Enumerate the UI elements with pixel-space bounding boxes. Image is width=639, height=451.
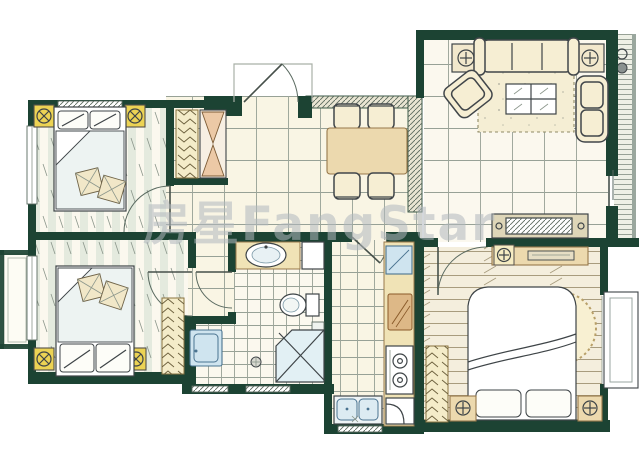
bed-1 (54, 107, 126, 211)
bay-window (602, 292, 638, 388)
bedroom-1-window (27, 126, 37, 204)
tv-cabinet (492, 214, 588, 238)
balcony-left (0, 250, 30, 349)
dining-chair (334, 173, 360, 199)
armchair-right (576, 76, 608, 142)
corner-cabinet (386, 398, 414, 424)
exterior-area (0, 384, 186, 451)
floor-drain (251, 357, 261, 367)
watermark: 房星FangStar (143, 197, 496, 252)
master-wardrobe (426, 346, 448, 422)
dining-table (327, 128, 407, 174)
washing-machine (190, 330, 222, 366)
coffee-table (506, 84, 556, 114)
floor-plan-svg: 房星FangStar (0, 0, 639, 451)
floor-plan-image: 房星FangStar (0, 0, 639, 451)
stove (386, 346, 413, 394)
shoe-cabinet (200, 110, 226, 178)
toilet (280, 294, 319, 316)
cutting-board (388, 294, 412, 330)
balcony-drain-icon (617, 63, 627, 73)
kitchen-window (338, 426, 382, 432)
side-table-lamp (576, 44, 604, 72)
nightstand-lamp (578, 396, 602, 421)
exterior-area (186, 394, 334, 451)
coat-closet (176, 110, 198, 178)
bedroom-1-top-vent (58, 101, 122, 107)
double-sink (334, 396, 382, 424)
dining-chair (368, 173, 394, 199)
balcony-outer-rail (632, 34, 636, 240)
bedroom-2-wardrobe (162, 298, 184, 374)
sofa-three-seat (474, 38, 579, 75)
dresser (492, 245, 588, 265)
corner-shower (276, 330, 324, 382)
master-bed (468, 287, 576, 420)
bed-2 (56, 266, 134, 376)
dining-chair (334, 104, 360, 129)
nightstand-lamp (450, 396, 476, 421)
bedroom-2-window (27, 256, 37, 340)
dining-chair (368, 104, 394, 129)
